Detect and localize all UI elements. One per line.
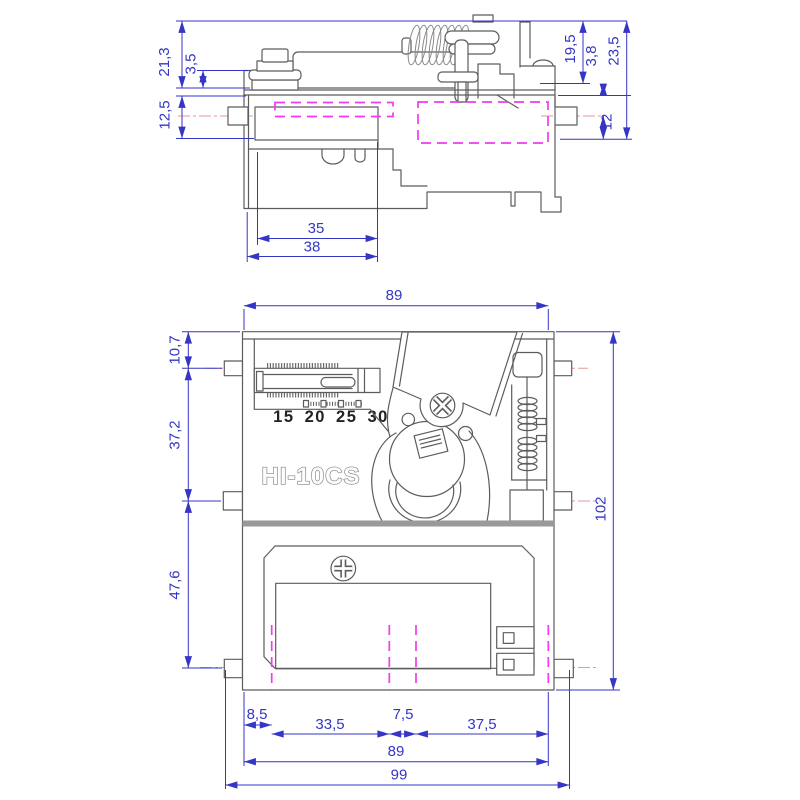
dim-bottom-center-gap-label: 7,5 [393,706,414,723]
dim-right-step-label: 3,8 [583,46,600,67]
dim-right-total-label: 23,5 [606,36,623,65]
dim-bottom-left-offset-label: 8,5 [247,706,268,723]
dim-body-width-label: 89 [388,743,405,760]
dim-inner-depth-label: 35 [308,220,325,237]
model-label: HI-10CS [261,463,360,490]
dim-pin-offset-label: 12,5 [157,100,174,129]
side-pin-right [555,107,577,125]
dim-top-width-label: 89 [386,287,403,304]
dim-top-pin-offset-label: 10,7 [167,335,184,364]
side-front-block [249,107,393,164]
dim-step-height-label: 3,5 [183,54,200,75]
top-funnel-block [285,52,460,88]
dim-bottom-left-span-label: 33,5 [315,716,344,733]
dim-total-height-label: 21,3 [156,47,173,76]
dim-outer-depth-label: 38 [304,239,321,256]
body-divider-band [243,521,555,527]
dim-pin-spacing-lower-label: 47,6 [167,570,184,599]
dim-right-pin-label: 12 [599,114,616,131]
dim-total-height-front-label: 102 [593,496,610,521]
front-view: 15 20 25 30 HI-10CS [167,287,621,789]
technical-drawing-page: 21,3 3,5 12,5 19,5 3,8 23,5 12 35 38 [0,0,800,800]
dim-bottom-right-span-label: 37,5 [467,716,496,733]
lower-front-panel [264,546,534,675]
side-view: 21,3 3,5 12,5 19,5 3,8 23,5 12 35 38 [156,15,632,262]
dim-right-height-label: 19,5 [562,34,579,63]
dim-total-width-label: 99 [391,767,408,784]
coin-acceptor-drawing: 21,3 3,5 12,5 19,5 3,8 23,5 12 35 38 [0,0,800,800]
dim-pin-spacing-upper-label: 37,2 [167,420,184,449]
side-pin-left [228,107,248,125]
